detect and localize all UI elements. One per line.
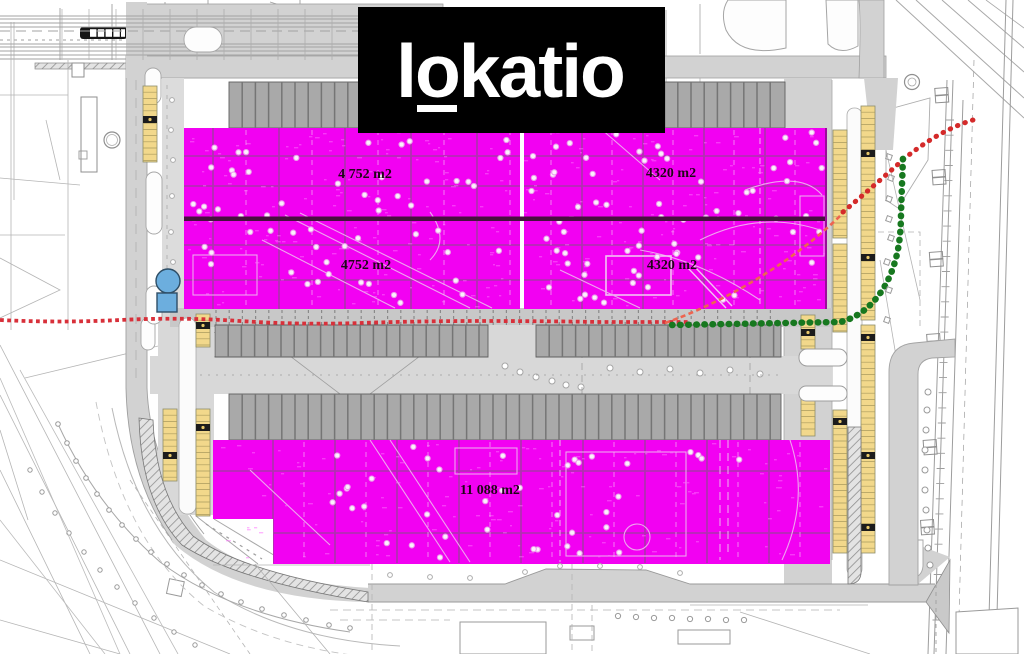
- svg-text:4320 m2: 4320 m2: [647, 258, 697, 273]
- svg-text:lokatio: lokatio: [396, 29, 624, 113]
- svg-text:4 752 m2: 4 752 m2: [338, 167, 392, 182]
- svg-text:11 088 m2: 11 088 m2: [460, 483, 520, 498]
- svg-text:4752 m2: 4752 m2: [341, 258, 391, 273]
- svg-text:4320 m2: 4320 m2: [646, 166, 696, 181]
